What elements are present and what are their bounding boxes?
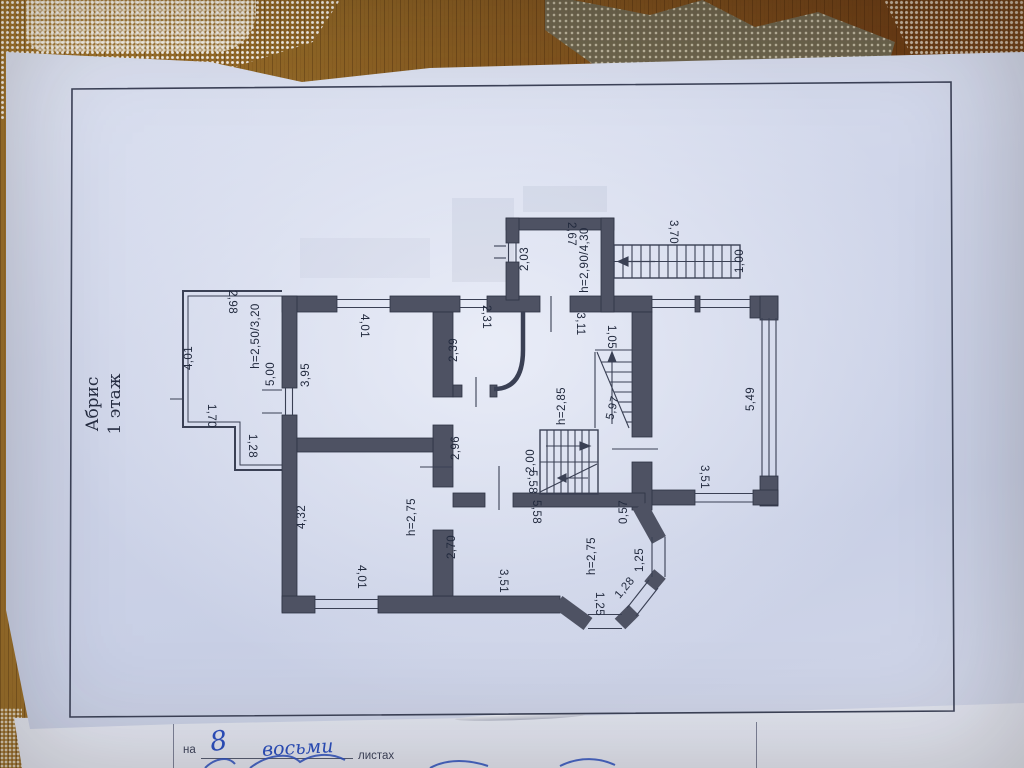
photo-of-floor-plan: Абрис 1 этаж 2,98 4,01 h=2,50/3,20 5,00 … — [0, 0, 1024, 768]
dimension-label: 1,00 — [734, 249, 746, 273]
dimension-label: 4,32 — [296, 505, 308, 529]
dimension-label: h=2,75 — [406, 498, 418, 536]
dimension-label: 5,49 — [745, 387, 757, 411]
dimension-label: h=2,85 — [556, 387, 568, 425]
dimension-label: 1,25 — [593, 592, 605, 616]
door-ticks — [420, 296, 658, 510]
dimension-label: 5,58 — [530, 500, 542, 524]
plan-border — [70, 82, 954, 717]
stair-direction-arrow — [608, 352, 616, 362]
dimension-label: 3,70 — [667, 220, 679, 244]
plan-title-line2: 1 этаж — [104, 374, 126, 435]
dimension-label: 4,01 — [358, 314, 370, 338]
internal-staircase — [540, 430, 598, 494]
dimension-label: h=2,50/3,20 — [250, 303, 262, 368]
dimension-label: 2,98 — [226, 290, 238, 314]
form-table-line — [756, 722, 757, 768]
form-label-listah: листах — [358, 750, 394, 762]
handwritten-count-word: восьми — [261, 735, 334, 761]
dimension-label: 0,57 — [618, 500, 630, 524]
plan-title: Абрис 1 этаж — [82, 374, 126, 435]
dimension-label: h=2,75 — [586, 537, 598, 575]
dimension-label: 2,96 — [450, 436, 462, 460]
dimension-label: 3,11 — [574, 312, 586, 335]
dimension-label: 3,51 — [698, 465, 710, 489]
dimension-label: 1,25 — [634, 548, 646, 572]
external-stairs — [614, 245, 740, 278]
dimension-label: 2,03 — [519, 247, 531, 271]
dimension-label: 4,01 — [183, 346, 195, 370]
dimension-label: 1,70 — [205, 404, 217, 428]
dimension-label: 4,01 — [355, 565, 367, 589]
dimension-label: 2,67 — [565, 222, 577, 246]
dimension-label: 3,51 — [497, 569, 509, 593]
dimension-label: 1,05 — [605, 325, 617, 349]
dimension-label: 2,31 — [480, 305, 492, 329]
floor-plan-drawing — [0, 0, 1024, 768]
form-label-na: на — [183, 744, 196, 756]
dimension-label: 2,70 — [446, 535, 458, 559]
dimension-label: h=2,90/4,30 — [579, 227, 591, 292]
dimension-label: 2,39 — [448, 338, 460, 362]
dimension-label: 5,58 — [526, 470, 538, 494]
plan-title-line1: Абрис — [82, 374, 104, 435]
dimension-label: 5,00 — [265, 362, 277, 386]
form-table-line — [173, 724, 174, 768]
dimension-label: 1,28 — [246, 434, 258, 458]
dimension-label: 3,95 — [300, 363, 312, 387]
curved-partition-wall — [494, 312, 523, 389]
print-bleed-ghost — [300, 186, 607, 282]
